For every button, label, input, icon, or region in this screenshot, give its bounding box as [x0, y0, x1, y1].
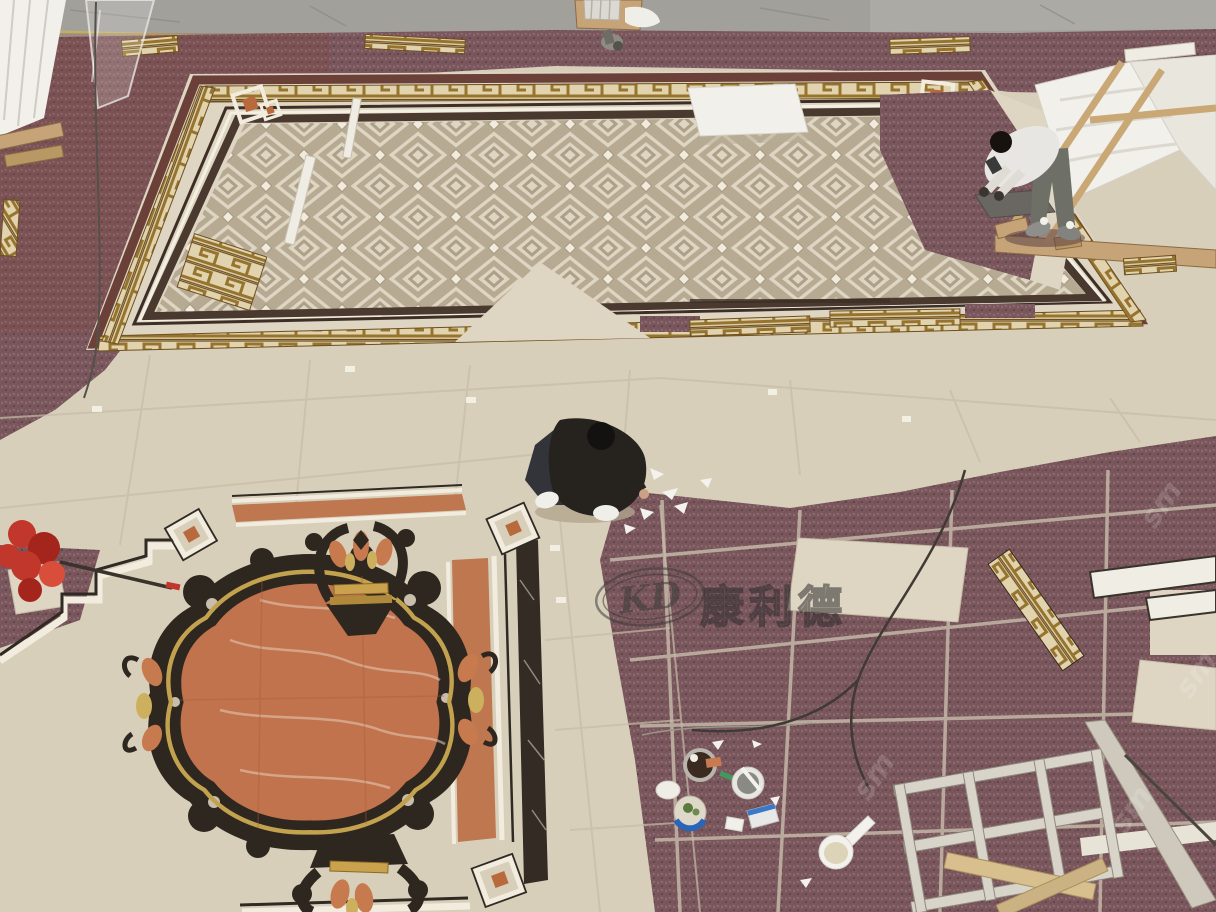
- worker-right-head: [990, 131, 1012, 153]
- blue-label-can: [674, 796, 706, 828]
- white-lid: [656, 781, 680, 799]
- worker-center-shoe: [593, 505, 619, 521]
- white-pot: [732, 767, 764, 799]
- scene-svg: KD 康利德 sm sm sm sm: [0, 0, 1216, 912]
- watermark-kd-text: KD: [616, 574, 684, 622]
- worker-center-hand: [639, 489, 649, 499]
- workshop-photo: KD 康利德 sm sm sm sm: [0, 0, 1216, 912]
- loose-white-slab: [688, 84, 808, 136]
- white-box: [725, 817, 744, 832]
- worker-center-head: [587, 422, 615, 450]
- watermark-cn-text: 康利德: [700, 582, 847, 633]
